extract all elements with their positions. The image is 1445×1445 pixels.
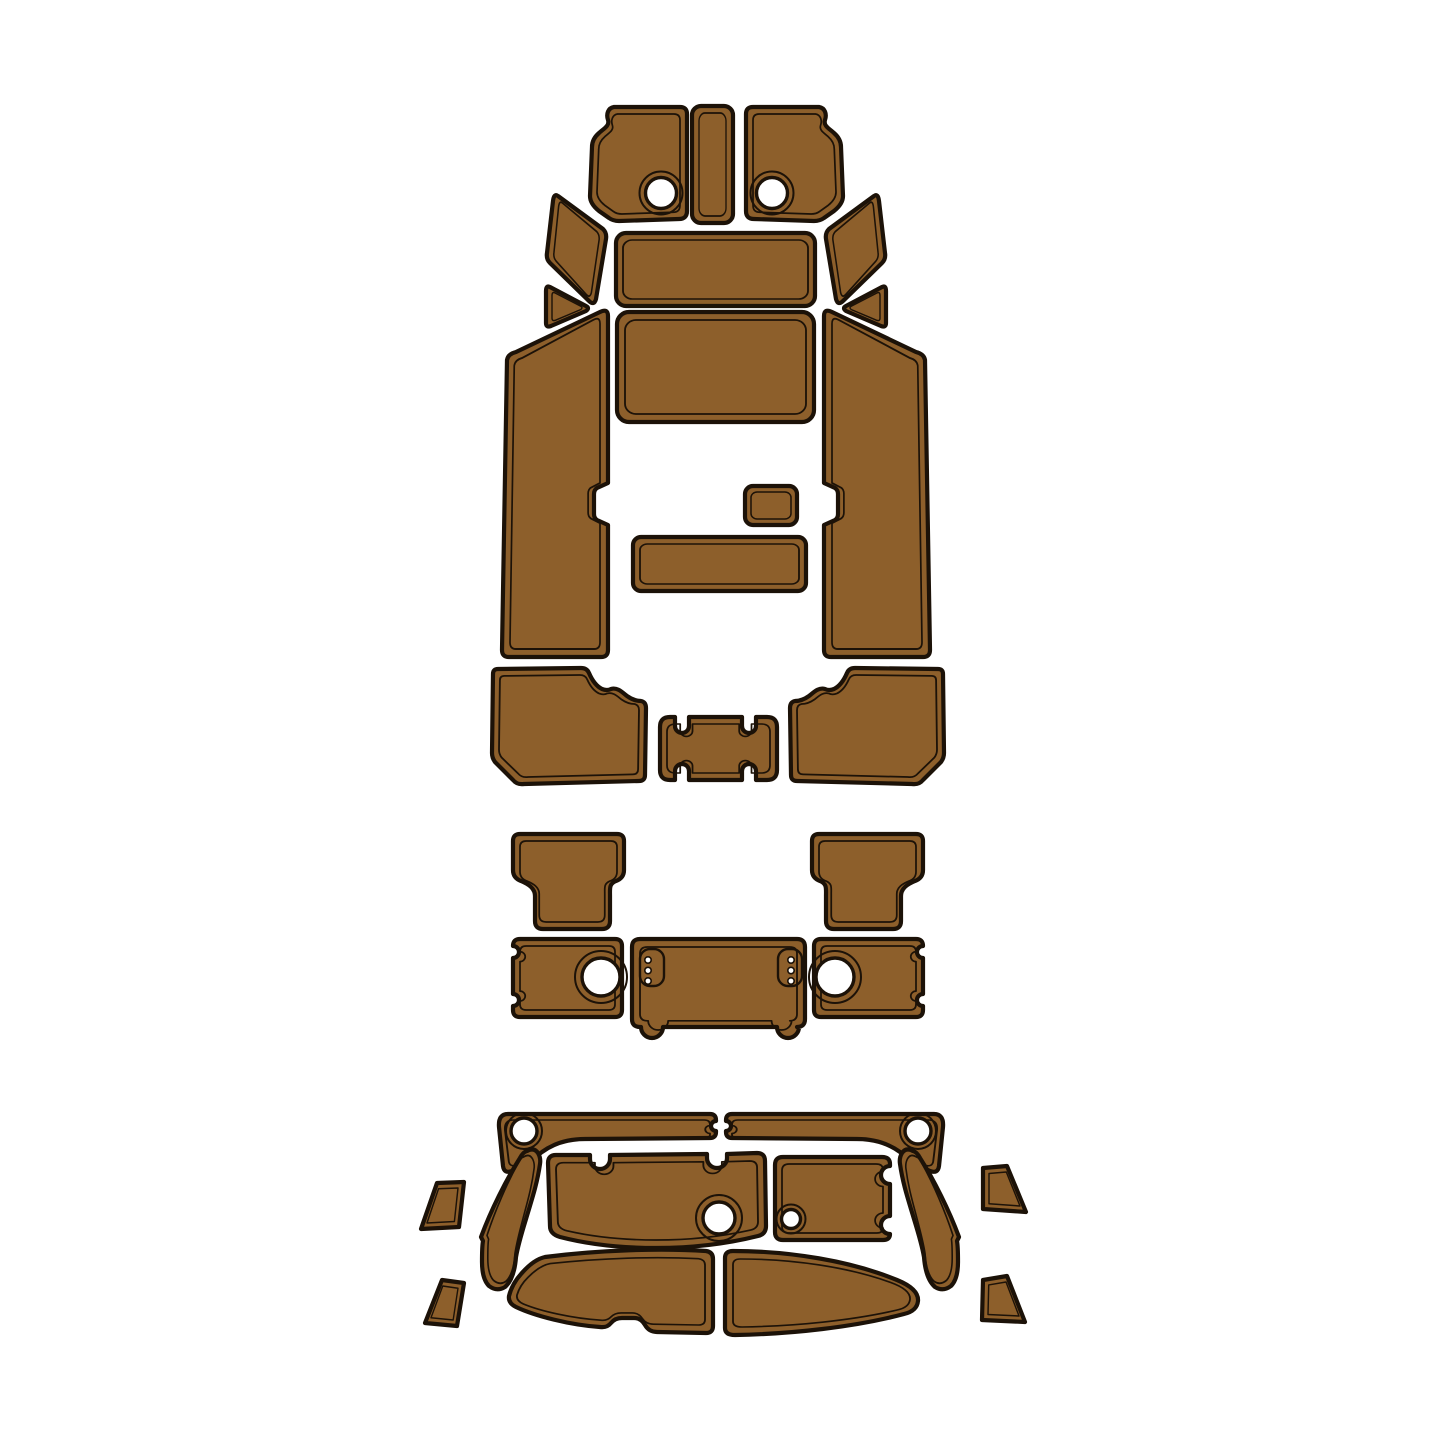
- pad-template-canvas: [0, 0, 1445, 1445]
- step-pad-shape: [633, 537, 806, 591]
- t-pad-starboard: [812, 834, 923, 929]
- t-pad-port: [513, 834, 624, 929]
- rear-latch-pad: [660, 717, 777, 780]
- hinge-hole: [645, 967, 651, 973]
- bow-port-hole: [646, 178, 677, 209]
- hatch-box-port-hole: [582, 958, 620, 996]
- upper-center-pad-shape: [616, 233, 815, 306]
- platform-port-hole: [703, 1202, 735, 1234]
- trim-quad-lower-port: [425, 1280, 464, 1326]
- gunwale-starboard-hole: [905, 1118, 931, 1144]
- hinge-hole: [645, 978, 651, 984]
- bow-pad-port: [590, 107, 687, 221]
- upper-center-pad: [616, 233, 815, 306]
- hatch-box-port: [513, 939, 627, 1017]
- side-panel-port-shape: [502, 311, 608, 657]
- transom-pad-port: [509, 1250, 713, 1333]
- wing-pad-starboard: [900, 1149, 959, 1289]
- trim-quad-lower-starboard: [982, 1276, 1025, 1322]
- hinge-hole: [788, 967, 794, 973]
- hatch-box-starboard-hole: [816, 958, 854, 996]
- main-center-pad: [617, 312, 814, 422]
- hatch-box-starboard: [809, 939, 923, 1017]
- platform-pad-starboard: [775, 1157, 890, 1240]
- hinge-hole: [788, 957, 794, 963]
- transom-pad-starboard: [725, 1251, 918, 1335]
- platform-starboard-hole: [782, 1210, 801, 1229]
- gunwale-port-hole: [511, 1118, 537, 1144]
- step-pad: [633, 537, 806, 591]
- platform-pad-port: [548, 1153, 766, 1248]
- trim-quad-upper-port: [421, 1182, 464, 1229]
- small-hatch-pad: [745, 486, 797, 525]
- wing-pad-starboard-shape: [900, 1149, 959, 1289]
- rear-corner-pad-starboard-shape: [790, 668, 944, 784]
- bow-starboard-hole: [757, 178, 788, 209]
- rear-latch-pad-shape: [660, 717, 777, 780]
- eva-foam-pad-diagram: [0, 0, 1445, 1445]
- side-panel-starboard-shape: [824, 311, 930, 657]
- trim-quad-upper-starboard: [983, 1166, 1026, 1212]
- rear-corner-pad-port: [492, 668, 646, 784]
- bow-center-strip-shape: [692, 106, 733, 223]
- main-center-pad-shape: [617, 312, 814, 422]
- hinge-hole: [645, 957, 651, 963]
- center-hatch-pad: [632, 939, 805, 1038]
- transom-pad-port-shape: [509, 1250, 713, 1333]
- side-panel-port: [502, 311, 608, 657]
- hinge-hole: [788, 978, 794, 984]
- rear-corner-pad-starboard: [790, 668, 944, 784]
- bow-pad-starboard: [746, 107, 843, 221]
- rear-corner-pad-port-shape: [492, 668, 646, 784]
- side-panel-starboard: [824, 311, 930, 657]
- bow-center-strip: [692, 106, 733, 223]
